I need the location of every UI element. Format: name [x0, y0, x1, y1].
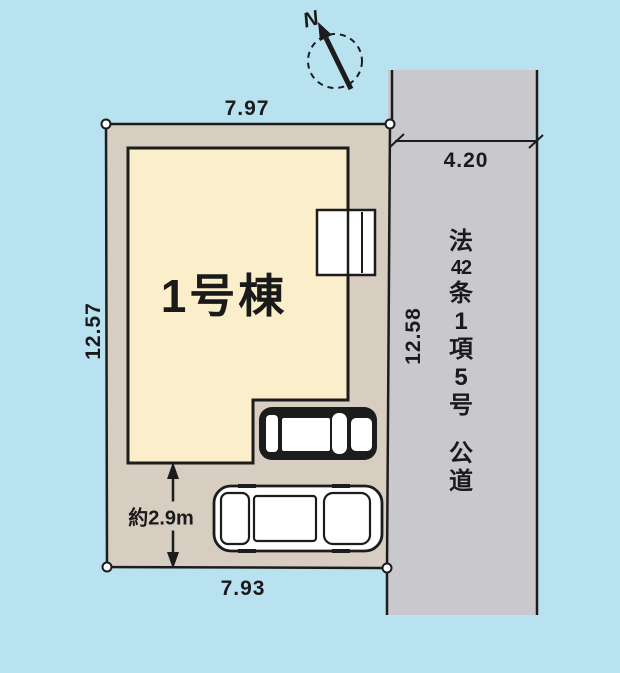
lot-corner-marker [383, 564, 392, 573]
road-label-char: 道 [449, 468, 473, 496]
building-label: 1号棟 [161, 260, 288, 326]
dimension-right: 12.58 [402, 307, 426, 365]
lot-corner-marker [103, 563, 112, 572]
dimension-left: 12.57 [82, 302, 106, 360]
parking-depth-label: 約2.9m [126, 502, 196, 531]
dimension-top: 7.97 [225, 97, 270, 121]
compass-needle [326, 38, 351, 89]
road-label-char: 法 [449, 228, 473, 256]
dimension-bottom: 7.93 [221, 577, 266, 601]
balcony [317, 210, 375, 275]
road-label-char: 公 [449, 440, 473, 468]
road-label-char: 項 [449, 336, 473, 364]
car-compact [259, 407, 377, 460]
road-label: 法 42 条 1 項 5 号 公 道 [446, 228, 476, 496]
road-label-char: 号 [449, 392, 473, 420]
dimension-road-width: 4.20 [444, 149, 489, 173]
road-label-char: 1 [454, 308, 467, 336]
car-sedan [214, 486, 382, 551]
road-label-char: 42 [451, 256, 471, 280]
road-label-char: 条 [449, 280, 473, 308]
site-plan: N 7.97 7.93 12.57 12.58 4.20 1号棟 約2.9m 法… [0, 0, 620, 673]
lot-corner-marker [386, 120, 395, 129]
road-label-char: 5 [454, 364, 467, 392]
lot-corner-marker [102, 120, 111, 129]
